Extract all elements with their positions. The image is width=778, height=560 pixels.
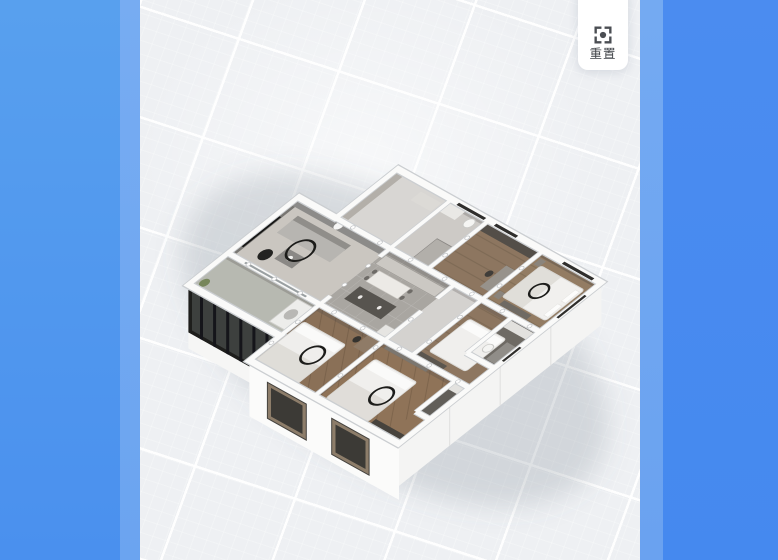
reset-view-button[interactable]: 重置 bbox=[578, 0, 628, 70]
viewport-canvas[interactable]: 重置 bbox=[140, 0, 640, 560]
reset-button-label: 重置 bbox=[589, 48, 616, 61]
background-right-panel-edge bbox=[640, 0, 663, 560]
focus-reset-icon bbox=[592, 24, 614, 46]
background-left-panel bbox=[0, 0, 120, 560]
floorplan-editor-page: { "toolbar": { "reset_button": { "label"… bbox=[0, 0, 778, 560]
floorplan-3d-model[interactable] bbox=[140, 0, 640, 560]
background-right-panel bbox=[663, 0, 778, 560]
background-left-panel-edge bbox=[120, 0, 140, 560]
